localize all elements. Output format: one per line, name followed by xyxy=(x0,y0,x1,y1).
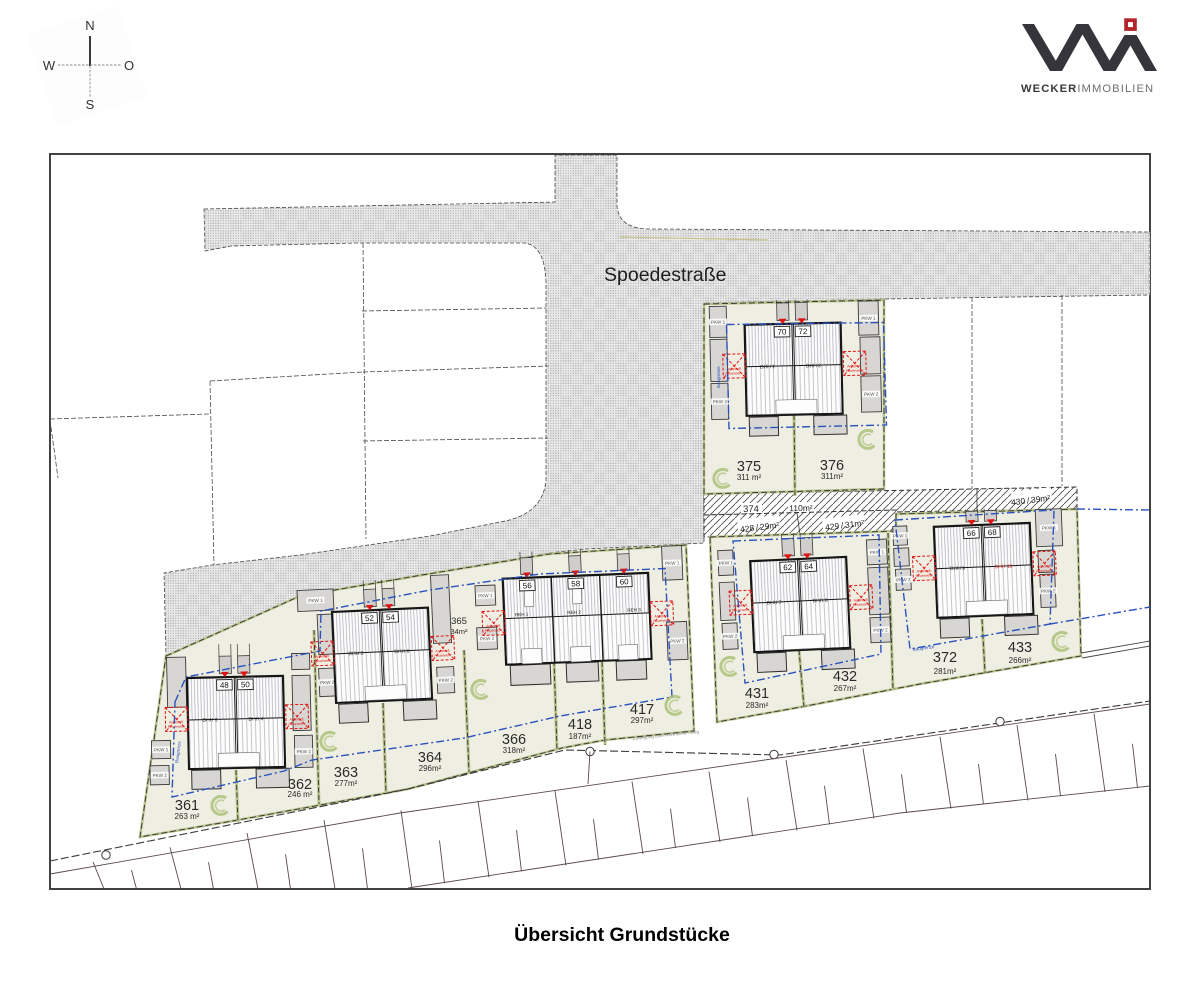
svg-text:267m²: 267m² xyxy=(834,684,857,693)
svg-text:263 m²: 263 m² xyxy=(175,812,200,821)
svg-text:PKW 1: PKW 1 xyxy=(1042,525,1057,531)
svg-text:50: 50 xyxy=(241,680,251,689)
svg-text:Feuerwehr: Feuerwehr xyxy=(288,722,306,726)
svg-text:PKW 2: PKW 2 xyxy=(896,577,911,583)
svg-text:72: 72 xyxy=(798,327,808,336)
svg-text:281m²: 281m² xyxy=(934,667,957,676)
svg-text:PKW 1: PKW 1 xyxy=(719,560,734,566)
svg-text:58: 58 xyxy=(571,579,581,588)
svg-text:DHH 7: DHH 7 xyxy=(766,600,781,607)
svg-text:PKW 1: PKW 1 xyxy=(870,549,885,555)
svg-text:Feuerwehr: Feuerwehr xyxy=(916,573,934,578)
svg-text:DHH 1: DHH 1 xyxy=(760,364,775,370)
svg-text:REH 3: REH 3 xyxy=(627,607,641,613)
svg-text:PKW 1: PKW 1 xyxy=(154,747,169,752)
svg-text:PKW 2: PKW 2 xyxy=(296,749,311,754)
svg-text:Feuerwehr: Feuerwehr xyxy=(434,653,452,658)
svg-text:Feuerwehr: Feuerwehr xyxy=(846,369,864,373)
svg-text:PKW 1: PKW 1 xyxy=(478,593,493,599)
svg-text:PKW 1: PKW 1 xyxy=(308,598,323,604)
svg-text:Spoedestraße: Spoedestraße xyxy=(604,264,727,286)
svg-text:Feuerwehr: Feuerwehr xyxy=(314,659,332,664)
svg-text:PKW 1: PKW 1 xyxy=(893,533,908,539)
svg-text:266m²: 266m² xyxy=(1009,656,1032,665)
svg-text:WECKERIMMOBILIEN: WECKERIMMOBILIEN xyxy=(1021,83,1154,95)
svg-text:DHH 10: DHH 10 xyxy=(994,564,1012,571)
svg-text:Feuerwehr: Feuerwehr xyxy=(168,725,186,729)
svg-text:PKW 2: PKW 2 xyxy=(864,392,879,397)
svg-text:54: 54 xyxy=(386,613,396,622)
svg-text:PKW 2: PKW 2 xyxy=(153,773,168,778)
svg-text:60: 60 xyxy=(620,577,630,586)
svg-text:297m²: 297m² xyxy=(631,716,654,725)
svg-text:372: 372 xyxy=(933,650,957,666)
svg-text:62: 62 xyxy=(783,563,793,572)
svg-text:431: 431 xyxy=(745,686,769,702)
svg-text:PKW 1: PKW 1 xyxy=(665,560,680,566)
svg-text:110m²: 110m² xyxy=(789,503,813,513)
svg-text:W: W xyxy=(43,58,56,73)
svg-text:REH 1: REH 1 xyxy=(515,612,529,618)
svg-text:432: 432 xyxy=(833,669,857,685)
svg-text:Feuerwehr: Feuerwehr xyxy=(853,602,871,607)
svg-text:52: 52 xyxy=(365,614,375,623)
svg-text:296m²: 296m² xyxy=(419,764,442,773)
svg-text:DHH 4: DHH 4 xyxy=(248,716,263,722)
svg-text:DHH 3: DHH 3 xyxy=(202,717,217,723)
svg-text:311m²: 311m² xyxy=(821,472,843,481)
svg-text:311 m²: 311 m² xyxy=(737,473,762,482)
svg-text:PKW 2: PKW 2 xyxy=(670,638,685,644)
svg-text:365: 365 xyxy=(451,616,467,627)
svg-text:PKW 2: PKW 2 xyxy=(1041,588,1056,594)
svg-text:DHH 6: DHH 6 xyxy=(394,649,409,656)
svg-text:PKW 2: PKW 2 xyxy=(480,636,495,642)
svg-text:56: 56 xyxy=(523,581,533,590)
svg-text:64: 64 xyxy=(804,562,814,571)
svg-text:N: N xyxy=(85,18,94,33)
svg-text:Baugrenze: Baugrenze xyxy=(716,366,721,388)
svg-text:283m²: 283m² xyxy=(746,701,769,710)
svg-text:DHH 8: DHH 8 xyxy=(812,598,827,605)
svg-text:Übersicht Grundstücke: Übersicht Grundstücke xyxy=(514,923,730,946)
svg-text:PKW 2: PKW 2 xyxy=(723,634,738,640)
svg-text:DHH 5: DHH 5 xyxy=(348,651,363,658)
svg-text:246 m²: 246 m² xyxy=(288,790,313,799)
svg-text:REH 2: REH 2 xyxy=(567,610,581,616)
svg-text:34m²: 34m² xyxy=(450,627,468,636)
svg-text:PKW 1: PKW 1 xyxy=(861,316,876,321)
svg-text:PKW 2: PKW 2 xyxy=(320,680,335,686)
svg-text:Feuerwehr: Feuerwehr xyxy=(485,628,503,633)
svg-text:318m²: 318m² xyxy=(503,746,526,755)
svg-text:S: S xyxy=(86,97,95,112)
svg-text:66: 66 xyxy=(967,529,977,538)
svg-text:DHH 2: DHH 2 xyxy=(806,363,821,369)
svg-text:48: 48 xyxy=(220,681,230,690)
svg-text:DHH 9: DHH 9 xyxy=(950,566,965,573)
svg-text:Feuerwehr: Feuerwehr xyxy=(732,608,750,613)
svg-text:187m²: 187m² xyxy=(569,732,592,741)
svg-text:PKW 2: PKW 2 xyxy=(713,399,728,404)
svg-text:O: O xyxy=(124,58,134,73)
svg-text:68: 68 xyxy=(988,528,998,537)
svg-text:418: 418 xyxy=(568,717,592,733)
svg-text:277m²: 277m² xyxy=(335,779,358,788)
svg-text:70: 70 xyxy=(777,327,787,336)
svg-text:PKW 1: PKW 1 xyxy=(711,320,726,325)
svg-text:PKW 2: PKW 2 xyxy=(438,677,453,683)
svg-text:Feuerwehr: Feuerwehr xyxy=(653,618,671,623)
svg-text:433: 433 xyxy=(1008,640,1032,656)
